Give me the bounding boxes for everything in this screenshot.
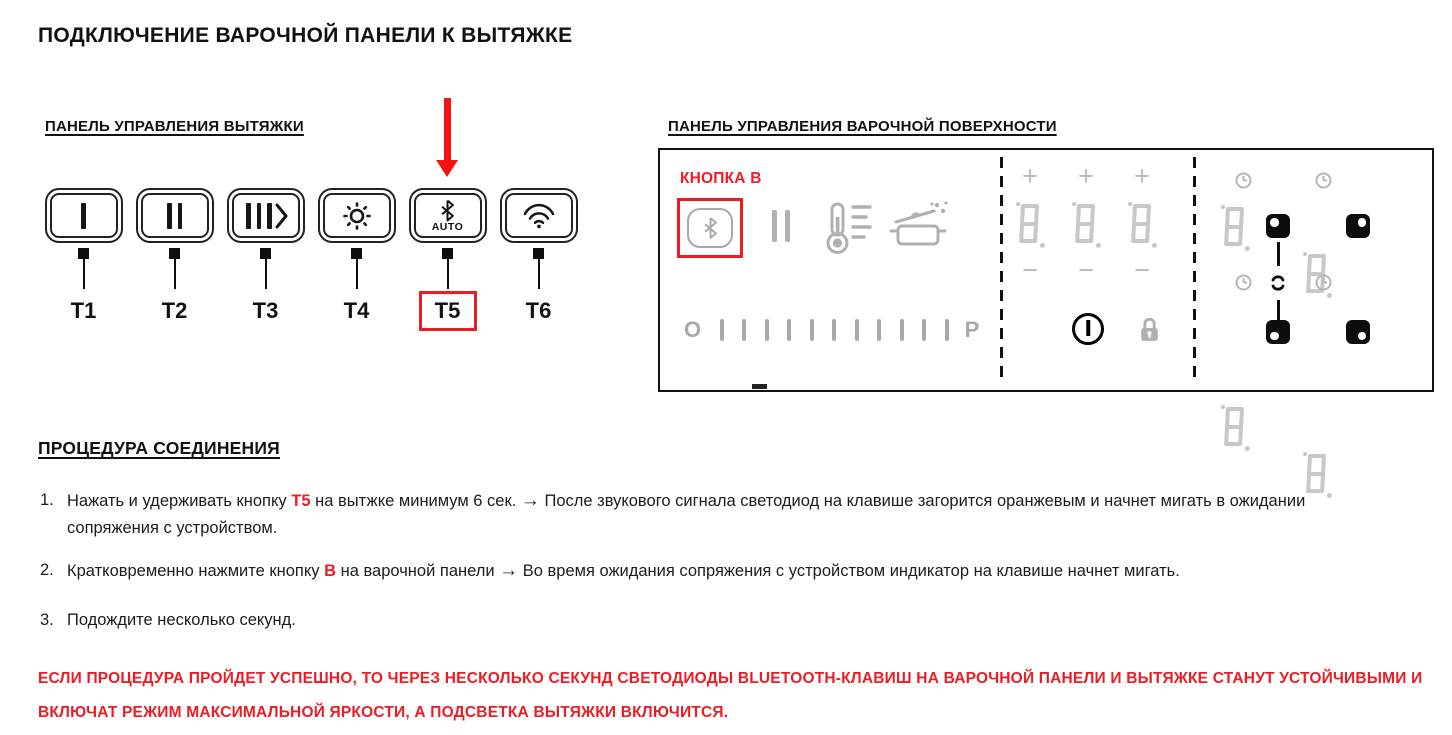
boil-detect-icon	[888, 198, 950, 254]
step-key-b: B	[324, 562, 336, 580]
manual-page: ПОДКЛЮЧЕНИЕ ВАРОЧНОЙ ПАНЕЛИ К ВЫТЯЖКЕ ПА…	[0, 0, 1452, 735]
hood-button-label-t4: T4	[328, 291, 386, 331]
minus-symbol: −	[1022, 258, 1038, 282]
section-divider	[1193, 157, 1196, 383]
wifi-icon	[522, 203, 556, 229]
bridge-link-icon	[1268, 268, 1288, 298]
hood-button-group-t2: T2	[129, 188, 220, 331]
step-text: Нажать и удерживать кнопку	[67, 492, 291, 510]
zone-display-column: + −	[1011, 164, 1049, 282]
callout-marker	[260, 248, 271, 259]
scale-end-label: P	[965, 317, 980, 343]
callout-marker	[169, 248, 180, 259]
fan-speed-1-icon	[78, 203, 89, 229]
power-icon	[1072, 313, 1104, 345]
timer-clock-icon	[1235, 274, 1252, 291]
callout-marker	[351, 248, 362, 259]
fan-speed-2-icon	[164, 203, 185, 229]
callout-line	[356, 259, 358, 289]
power-level-scale: O P	[684, 317, 979, 343]
procedure-step-1: 1. Нажать и удерживать кнопку T5 на вытж…	[40, 487, 1397, 542]
step-text: Подождите несколько секунд.	[67, 611, 296, 629]
hood-panel-title: ПАНЕЛЬ УПРАВЛЕНИЯ ВЫТЯЖКИ	[45, 118, 304, 135]
bluetooth-icon	[703, 217, 718, 239]
hood-button-label-t2: T2	[146, 291, 204, 331]
callout-line	[174, 259, 176, 289]
button-b-highlight-box	[677, 198, 743, 258]
button-b-callout: КНОПКА B	[680, 170, 762, 188]
callout-line	[447, 259, 449, 289]
callout-marker	[533, 248, 544, 259]
minus-symbol: −	[1078, 258, 1094, 282]
hood-button-group-t3: T3	[220, 188, 311, 331]
hood-button-t6	[500, 188, 578, 243]
procedure-step-3: 3. Подождите несколько секунд.	[40, 607, 1397, 634]
step-number: 1.	[40, 487, 54, 514]
callout-marker	[78, 248, 89, 259]
scale-start-label: O	[684, 317, 701, 343]
section-divider	[1000, 157, 1003, 383]
plus-symbol: +	[1078, 164, 1094, 188]
seven-segment-digit	[1219, 204, 1251, 251]
hood-button-t2	[136, 188, 214, 243]
artifact-mark	[752, 384, 767, 389]
zone-indicator-back-left	[1266, 214, 1290, 238]
step-text: Кратковременно нажмите кнопку	[67, 562, 324, 580]
callout-line	[83, 259, 85, 289]
timer-clock-icon	[1235, 172, 1252, 189]
hood-button-t1	[45, 188, 123, 243]
hood-button-group-t1: T1	[38, 188, 129, 331]
hob-bluetooth-button	[687, 208, 733, 248]
bridge-link-line	[1277, 300, 1280, 320]
bridge-link-line	[1277, 242, 1280, 266]
zone-display-column: + −	[1067, 164, 1105, 282]
seven-segment-digit	[1014, 201, 1046, 248]
timer-clock-icon	[1315, 172, 1332, 189]
step-text: Во время ожидания сопряжения с устройств…	[518, 562, 1180, 580]
minus-symbol: −	[1134, 258, 1150, 282]
seven-segment-digit	[1219, 404, 1251, 451]
bluetooth-icon	[440, 199, 455, 222]
zone-display-column: + −	[1123, 164, 1161, 282]
fan-speed-3-boost-icon	[243, 203, 288, 229]
hood-button-group-t5: AUTO T5	[402, 188, 493, 331]
step-number: 2.	[40, 557, 54, 584]
attention-arrow-head	[436, 160, 458, 177]
light-icon	[342, 201, 372, 231]
seven-segment-digit	[1126, 201, 1158, 248]
timer-clock-icon	[1315, 274, 1332, 291]
hood-button-group-t4: T4	[311, 188, 402, 331]
zone-indicator-front-left	[1266, 320, 1290, 344]
attention-arrow	[444, 98, 451, 160]
page-title: ПОДКЛЮЧЕНИЕ ВАРОЧНОЙ ПАНЕЛИ К ВЫТЯЖКЕ	[38, 24, 572, 48]
hob-panel-title: ПАНЕЛЬ УПРАВЛЕНИЯ ВАРОЧНОЙ ПОВЕРХНОСТИ	[668, 118, 1057, 135]
seven-segment-digit	[1070, 201, 1102, 248]
auto-label: AUTO	[432, 221, 464, 233]
temperature-levels-icon	[820, 200, 872, 256]
plus-symbol: +	[1134, 164, 1150, 188]
scale-bar	[720, 319, 724, 341]
procedure-title: ПРОЦЕДУРА СОЕДИНЕНИЯ	[38, 438, 280, 459]
procedure-step-2: 2. Кратковременно нажмите кнопку B на ва…	[40, 557, 1397, 585]
hood-button-label-t5-highlighted: T5	[419, 291, 477, 331]
callout-line	[265, 259, 267, 289]
hood-buttons-row: T1 T2 T3	[38, 188, 584, 331]
hood-button-label-t3: T3	[237, 291, 295, 331]
hood-button-label-t1: T1	[55, 291, 113, 331]
step-number: 3.	[40, 607, 54, 634]
hood-button-group-t6: T6	[493, 188, 584, 331]
hood-button-label-t6: T6	[510, 291, 568, 331]
hob-panel-diagram: КНОПКА B	[658, 148, 1434, 392]
hood-button-t4	[318, 188, 396, 243]
step-text: на вытжке минимум 6 сек.	[311, 492, 521, 510]
callout-marker	[442, 248, 453, 259]
success-warning-text: ЕСЛИ ПРОЦЕДУРА ПРОЙДЕТ УСПЕШНО, ТО ЧЕРЕЗ…	[38, 662, 1450, 730]
step-text: на варочной панели	[336, 562, 499, 580]
arrow-glyph: →	[499, 560, 518, 581]
plus-symbol: +	[1022, 164, 1038, 188]
hood-button-t3	[227, 188, 305, 243]
step-key-t5: T5	[291, 492, 310, 510]
lock-icon	[1138, 315, 1161, 343]
zone-indicator-front-right	[1346, 320, 1370, 344]
pause-icon	[768, 210, 794, 242]
callout-line	[538, 259, 540, 289]
hood-button-t5: AUTO	[409, 188, 487, 243]
arrow-glyph: →	[521, 490, 540, 511]
zone-indicator-back-right	[1346, 214, 1370, 238]
